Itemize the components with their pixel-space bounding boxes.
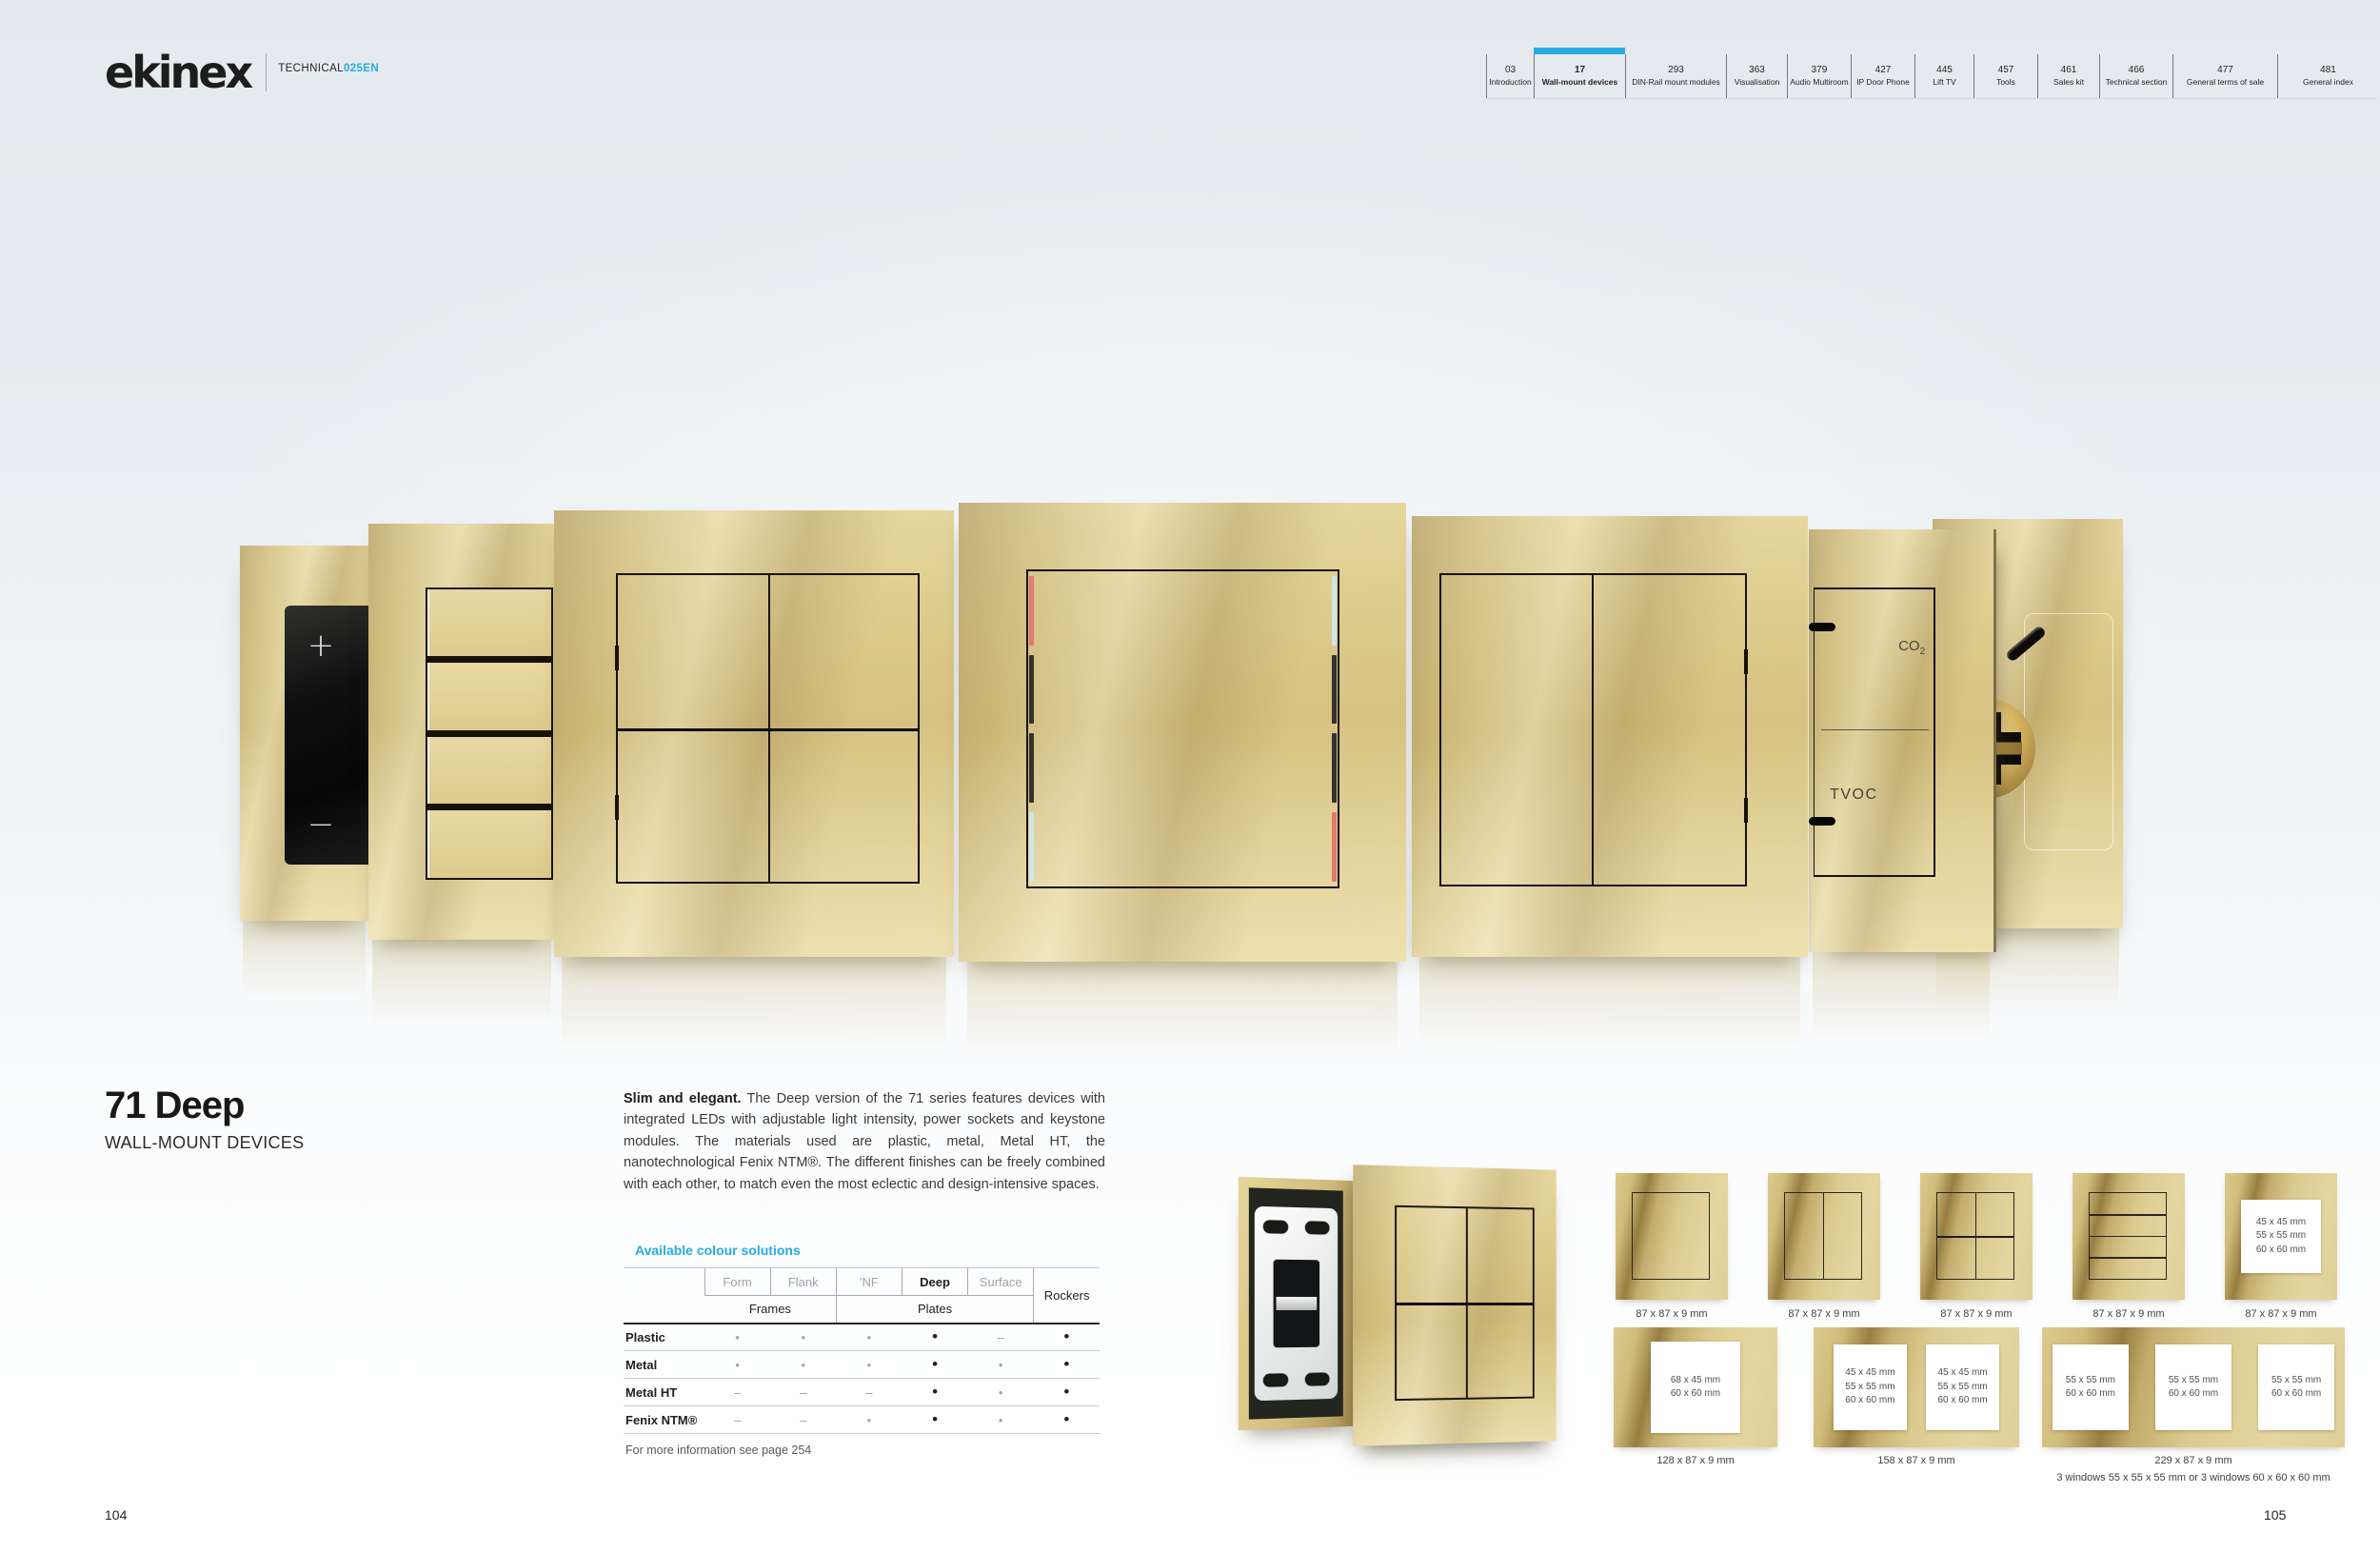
keystone-window: 55 x 55 mm 60 x 60 mm — [2258, 1344, 2334, 1431]
dimension-figure-four-horizontal: 87 x 87 x 9 mm — [2073, 1173, 2185, 1300]
page-number-left: 104 — [105, 1507, 127, 1523]
led-segment — [1332, 812, 1337, 882]
availability-cell: – — [968, 1324, 1034, 1351]
column-header-deep: Deep — [902, 1268, 967, 1296]
column-header-nf: 'NF — [836, 1268, 902, 1296]
dimension-figure-quad: 87 x 87 x 9 mm — [1920, 1173, 2033, 1300]
rocker — [427, 737, 551, 804]
dimension-caption: 87 x 87 x 9 mm — [2225, 1308, 2337, 1320]
product-description: Slim and elegant. The Deep version of th… — [624, 1088, 1105, 1195]
fixing-slot — [1263, 1373, 1288, 1387]
table-row: Metal HT – – – • • • — [624, 1379, 1100, 1406]
dimension-caption: 87 x 87 x 9 mm — [1616, 1308, 1728, 1320]
title-block: 71 Deep WALL-MOUNT DEVICES — [105, 1085, 304, 1153]
colour-solutions-block: Available colour solutions Form Flank 'N… — [624, 1243, 1100, 1457]
colour-solutions-table: Form Flank 'NF Deep Surface Rockers Fram… — [624, 1267, 1100, 1434]
fixing-slot — [1305, 1372, 1330, 1386]
led-strip — [1029, 576, 1034, 882]
availability-cell: – — [836, 1379, 902, 1406]
column-header-flank: Flank — [770, 1268, 836, 1296]
led-segment — [1029, 733, 1034, 803]
availability-cell: • — [704, 1324, 770, 1351]
availability-cell: • — [1034, 1324, 1100, 1351]
material-label: Metal HT — [624, 1379, 704, 1406]
empty-header-cell — [624, 1296, 704, 1324]
hero-product-photo: + − — [0, 0, 2380, 1066]
plate-quad-button — [554, 510, 954, 957]
material-label: Plastic — [624, 1324, 704, 1351]
grid-line — [2090, 1257, 2167, 1259]
availability-cell: • — [836, 1351, 902, 1379]
mounting-cavity — [1249, 1187, 1343, 1419]
grid-line — [1592, 575, 1595, 885]
dimension-caption-line2: 3 windows 55 x 55 x 55 mm or 3 windows 6… — [2042, 1472, 2345, 1483]
single-button — [1026, 569, 1339, 888]
dimension-figure-128: 68 x 45 mm 60 x 60 mm 128 x 87 x 9 mm — [1614, 1327, 1777, 1447]
co2-label: CO2 — [1898, 638, 1925, 657]
page-title: 71 Deep — [105, 1085, 304, 1125]
description-lead: Slim and elegant. — [624, 1091, 742, 1106]
group-header-frames: Frames — [704, 1296, 836, 1324]
led-notch — [615, 795, 619, 820]
column-header-rockers: Rockers — [1034, 1268, 1100, 1324]
fixing-slot — [1305, 1222, 1330, 1236]
table-row: Plastic • • • • – • — [624, 1324, 1100, 1351]
led-segment — [1332, 733, 1337, 803]
availability-cell: – — [770, 1406, 836, 1434]
minus-icon: − — [285, 806, 356, 844]
dimension-caption: 87 x 87 x 9 mm — [2073, 1308, 2185, 1320]
led-segment — [1029, 576, 1034, 646]
colour-solutions-heading: Available colour solutions — [635, 1243, 1100, 1258]
led-segment — [1029, 655, 1034, 725]
grid-line — [2090, 1236, 2167, 1238]
table-row: Metal • • • • • • — [624, 1351, 1100, 1379]
availability-cell: • — [968, 1406, 1034, 1434]
keystone-window: 55 x 55 mm 60 x 60 mm — [2155, 1344, 2231, 1431]
availability-cell: • — [1034, 1379, 1100, 1406]
grid-line — [618, 728, 918, 731]
availability-cell: • — [770, 1351, 836, 1379]
led-notch — [1744, 649, 1748, 674]
exploded-front-plate — [1353, 1165, 1556, 1446]
led-notch — [615, 646, 619, 670]
dimmer-screen: + − — [285, 606, 368, 865]
led-notch — [1744, 798, 1748, 823]
rocker — [427, 589, 551, 656]
rocker — [427, 810, 551, 877]
tvoc-label: TVOC — [1830, 786, 1877, 804]
dimension-caption: 158 x 87 x 9 mm — [1814, 1455, 2019, 1466]
availability-cell: • — [968, 1379, 1034, 1406]
dimension-caption: 229 x 87 x 9 mm — [2042, 1455, 2345, 1466]
plate-air-quality-sensor: CO2 TVOC — [1809, 529, 1996, 952]
led-strip — [1332, 576, 1337, 882]
availability-cell: • — [770, 1324, 836, 1351]
availability-cell: • — [836, 1406, 902, 1434]
led-segment — [1029, 812, 1034, 882]
fixing-slot — [1263, 1220, 1288, 1234]
availability-cell: – — [770, 1379, 836, 1406]
table-footnote: For more information see page 254 — [624, 1443, 1100, 1457]
led-segment — [1332, 576, 1337, 646]
column-header-surface: Surface — [968, 1268, 1034, 1296]
exploded-mounting-frame — [1239, 1177, 1353, 1430]
sensor-divider — [1821, 729, 1929, 731]
catalog-spread: ekinex TECHNICAL025EN 03 Introduction 17… — [0, 0, 2380, 1553]
dimension-figure-window: 45 x 45 mm 55 x 55 mm 60 x 60 mm 87 x 87… — [2225, 1173, 2337, 1300]
dimension-caption: 87 x 87 x 9 mm — [1768, 1308, 1880, 1320]
grid-line — [2090, 1214, 2167, 1216]
keystone-window: 55 x 55 mm 60 x 60 mm — [2053, 1344, 2129, 1431]
led-segment — [1332, 655, 1337, 725]
rocker-stack — [426, 587, 553, 880]
empty-header-cell — [624, 1268, 704, 1296]
quad-button-grid — [616, 573, 920, 884]
dimension-figure-229: 55 x 55 mm 60 x 60 mm 55 x 55 mm 60 x 60… — [2042, 1327, 2345, 1447]
page-subtitle: WALL-MOUNT DEVICES — [105, 1133, 304, 1153]
material-label: Fenix NTM® — [624, 1406, 704, 1434]
dimension-figure-158: 45 x 45 mm 55 x 55 mm 60 x 60 mm 45 x 45… — [1814, 1327, 2019, 1447]
availability-cell: • — [902, 1324, 967, 1351]
grid-line — [1937, 1236, 2014, 1238]
fixing-clip — [1277, 1297, 1317, 1310]
material-label: Metal — [624, 1351, 704, 1379]
quad-button-grid — [1395, 1205, 1535, 1400]
socket-cover-outline — [2024, 613, 2113, 850]
plate-single-button — [959, 503, 1406, 962]
column-header-form: Form — [704, 1268, 770, 1296]
dimension-caption: 128 x 87 x 9 mm — [1614, 1455, 1777, 1466]
availability-cell: • — [704, 1351, 770, 1379]
rocker-outline — [1632, 1192, 1711, 1280]
led-indicator — [1809, 817, 1835, 826]
dimension-caption: 87 x 87 x 9 mm — [1920, 1308, 2033, 1320]
availability-cell: • — [836, 1324, 902, 1351]
two-rocker-grid — [1439, 573, 1746, 886]
availability-cell: • — [902, 1379, 967, 1406]
keystone-window: 68 x 45 mm 60 x 60 mm — [1651, 1342, 1741, 1433]
mounting-plate — [1255, 1206, 1338, 1401]
dimension-figure-single: 87 x 87 x 9 mm — [1616, 1173, 1728, 1300]
group-header-plates: Plates — [836, 1296, 1033, 1324]
grid-line — [1823, 1193, 1825, 1279]
plus-icon: + — [285, 627, 356, 665]
availability-cell: – — [704, 1379, 770, 1406]
availability-cell: • — [902, 1351, 967, 1379]
keystone-window: 45 x 45 mm 55 x 55 mm 60 x 60 mm — [1926, 1344, 2000, 1431]
page-number-right: 105 — [2264, 1507, 2286, 1523]
availability-cell: – — [704, 1406, 770, 1434]
grid-line — [1397, 1303, 1533, 1305]
availability-cell: • — [1034, 1406, 1100, 1434]
table-row: Fenix NTM® – – • • • • — [624, 1406, 1100, 1434]
availability-cell: • — [1034, 1351, 1100, 1379]
availability-cell: • — [968, 1351, 1034, 1379]
keystone-window: 45 x 45 mm 55 x 55 mm 60 x 60 mm — [1834, 1344, 1908, 1431]
availability-cell: • — [902, 1406, 967, 1434]
plate-two-vertical-rockers — [1412, 516, 1808, 957]
plate-dimmer: + − — [240, 546, 368, 921]
led-indicator — [1809, 623, 1835, 631]
plate-four-horizontal-rockers — [368, 524, 555, 940]
keystone-window: 45 x 45 mm 55 x 55 mm 60 x 60 mm — [2241, 1200, 2322, 1273]
rocker — [427, 663, 551, 729]
dimension-figure-two-vertical: 87 x 87 x 9 mm — [1768, 1173, 1880, 1300]
